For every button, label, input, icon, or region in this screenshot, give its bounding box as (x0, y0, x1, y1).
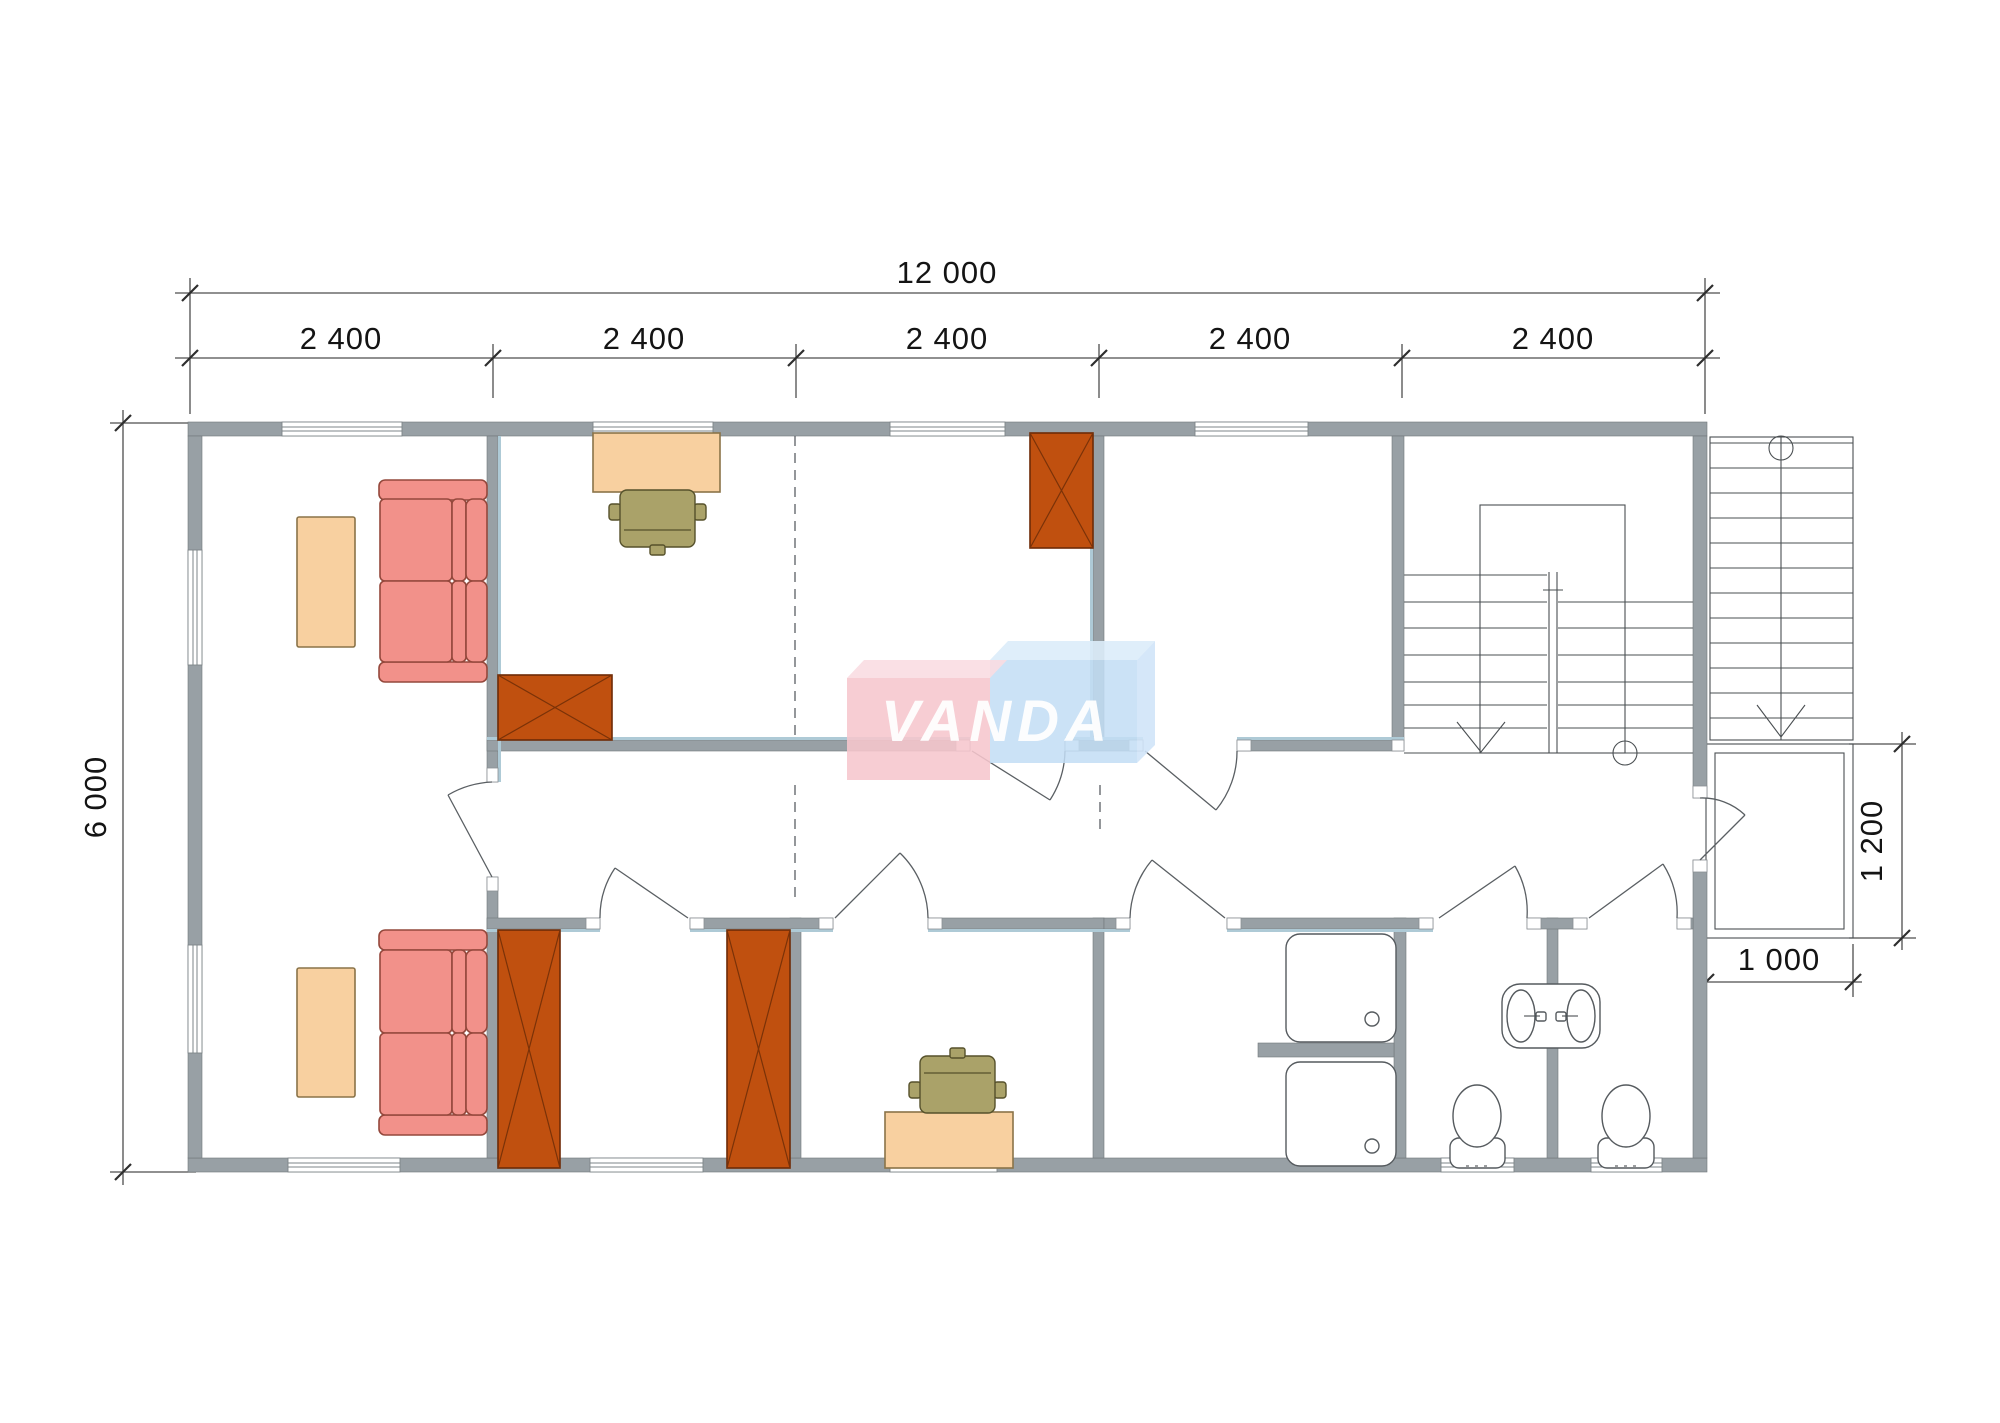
dim-bay-2: 2 400 (603, 321, 686, 356)
watermark-text: VANDA (881, 689, 1113, 754)
stair-down-arrow (1457, 722, 1505, 752)
dim-total-width: 12 000 (897, 255, 998, 290)
wall-corridor-south-5 (1227, 918, 1433, 929)
wall-shower-stub (1258, 1043, 1394, 1057)
sofa-upper (379, 480, 487, 682)
window-west-1 (188, 550, 202, 665)
dim-porch-depth: 1 200 (1854, 800, 1889, 883)
dim-bay-1: 2 400 (300, 321, 383, 356)
wardrobe-roomA-east (727, 930, 790, 1168)
wall-corridor-south-3 (928, 918, 1104, 929)
dim-bay-5: 2 400 (1512, 321, 1595, 356)
wall-corridor-north-3 (1237, 740, 1404, 751)
exterior-staircase (1710, 436, 1853, 740)
desk-roomB (885, 1112, 1013, 1168)
double-sink (1502, 984, 1600, 1048)
sofa-lower (379, 930, 487, 1135)
wall-exterior-east-upper (1693, 436, 1707, 798)
door-jambs (487, 740, 1707, 929)
doors (448, 751, 1745, 918)
window-north-1 (282, 422, 402, 436)
furniture (297, 433, 1093, 1168)
door-shower-room (1130, 860, 1225, 918)
dim-bay-4: 2 400 (1209, 321, 1292, 356)
wardrobe-room2-north (1030, 433, 1093, 548)
floor-plan-drawing: 12 000 2 400 2 400 2 400 2 400 2 400 6 0… (0, 0, 2000, 1423)
desk-room2 (593, 433, 720, 492)
door-wc2 (1589, 864, 1677, 918)
window-north-4 (1195, 422, 1308, 436)
wall-stairwell-west (1392, 436, 1404, 740)
wall-hall-east-upper (487, 436, 498, 782)
window-west-2 (188, 945, 202, 1053)
wall-corridor-south-1 (487, 918, 600, 929)
coffee-table-upper (297, 517, 355, 647)
wall-roomA-roomB (790, 918, 801, 1158)
window-north-3 (890, 422, 1005, 436)
dim-total-depth: 6 000 (78, 756, 113, 839)
stair-void-outline (1480, 505, 1625, 753)
wardrobe-roomA-west (498, 930, 560, 1168)
interior-staircase (1404, 505, 1693, 765)
chair-roomB (909, 1048, 1006, 1113)
wall-roomB-shower (1093, 918, 1104, 1158)
window-south-2 (590, 1158, 703, 1172)
door-roomA (600, 868, 688, 918)
shower-tray-2 (1286, 1062, 1396, 1166)
door-room3 (1145, 751, 1237, 810)
vanda-watermark: VANDA (847, 641, 1155, 780)
door-porch (1700, 798, 1745, 860)
floor-plan-page: 12 000 2 400 2 400 2 400 2 400 2 400 6 0… (0, 0, 2000, 1423)
door-hall (448, 782, 492, 877)
wardrobe-room2-south (498, 675, 612, 740)
dim-bay-3: 2 400 (906, 321, 989, 356)
door-roomB (835, 853, 928, 918)
wall-corridor-south-2 (690, 918, 833, 929)
shower-tray-1 (1286, 934, 1396, 1042)
dim-porch-width: 1 000 (1738, 942, 1821, 977)
porch (1706, 744, 1853, 938)
toilet-wc2 (1598, 1085, 1654, 1168)
wall-exterior-east-lower (1693, 860, 1707, 1158)
chair-room2 (609, 490, 706, 555)
window-south-1 (288, 1158, 400, 1172)
toilet-wc1 (1450, 1085, 1505, 1168)
coffee-table-lower (297, 968, 355, 1097)
door-wc1 (1439, 866, 1527, 918)
